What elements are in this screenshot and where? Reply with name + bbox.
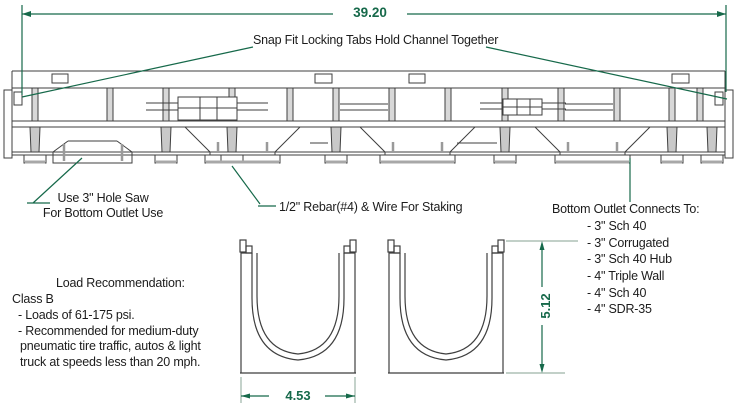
- snap-fit-tabs: [52, 74, 689, 83]
- hole-saw-annotation: Use 3" Hole Saw For Bottom Outlet Use: [30, 191, 176, 221]
- rebar-clip-detail-right: [480, 99, 566, 115]
- side-elevation-drawing: [4, 71, 733, 163]
- width-dimension-text: 4.53: [271, 389, 325, 403]
- bottom-outlet-item: - 3" Sch 40: [587, 219, 646, 234]
- hopper-funnels: [185, 127, 650, 163]
- load-class-label: Class B: [12, 292, 54, 307]
- cross-section-right-drawing: [388, 240, 504, 373]
- rebar-leader-line: [232, 166, 276, 206]
- bottom-outlet-title: Bottom Outlet Connects To:: [552, 202, 699, 217]
- cross-section-left-drawing: [240, 240, 356, 373]
- hole-saw-line1: Use 3" Hole Saw: [30, 191, 176, 206]
- bottom-outlet-item: - 4" Triple Wall: [587, 269, 664, 284]
- right-end-cap: [715, 71, 733, 158]
- bottom-outlet-item: - 3" Corrugated: [587, 236, 669, 251]
- overall-length-dimension-text: 39.20: [333, 6, 407, 20]
- bottom-outlet-item: - 4" SDR-35: [587, 302, 652, 317]
- load-line: pneumatic tire traffic, autos & light: [20, 339, 201, 354]
- left-end-cap: [4, 71, 22, 158]
- snap-fit-annotation: Snap Fit Locking Tabs Hold Channel Toget…: [253, 33, 498, 48]
- snap-fit-leader-lines: [22, 47, 727, 99]
- load-line: - Loads of 61-175 psi.: [18, 308, 135, 323]
- channel-drain-technical-diagram: 39.20 Snap Fit Locking Tabs Hold Channel…: [0, 0, 737, 409]
- height-dimension-text: 5.12: [539, 287, 553, 325]
- bottom-outlet-item: - 3" Sch 40 Hub: [587, 252, 672, 267]
- load-line: - Recommended for medium-duty: [18, 324, 198, 339]
- hole-saw-line2: For Bottom Outlet Use: [30, 206, 176, 221]
- load-recommendation-title: Load Recommendation:: [56, 276, 185, 291]
- load-line: truck at speeds less than 20 mph.: [20, 355, 200, 370]
- bottom-outlet-item: - 4" Sch 40: [587, 286, 646, 301]
- rebar-annotation: 1/2" Rebar(#4) & Wire For Staking: [279, 200, 462, 215]
